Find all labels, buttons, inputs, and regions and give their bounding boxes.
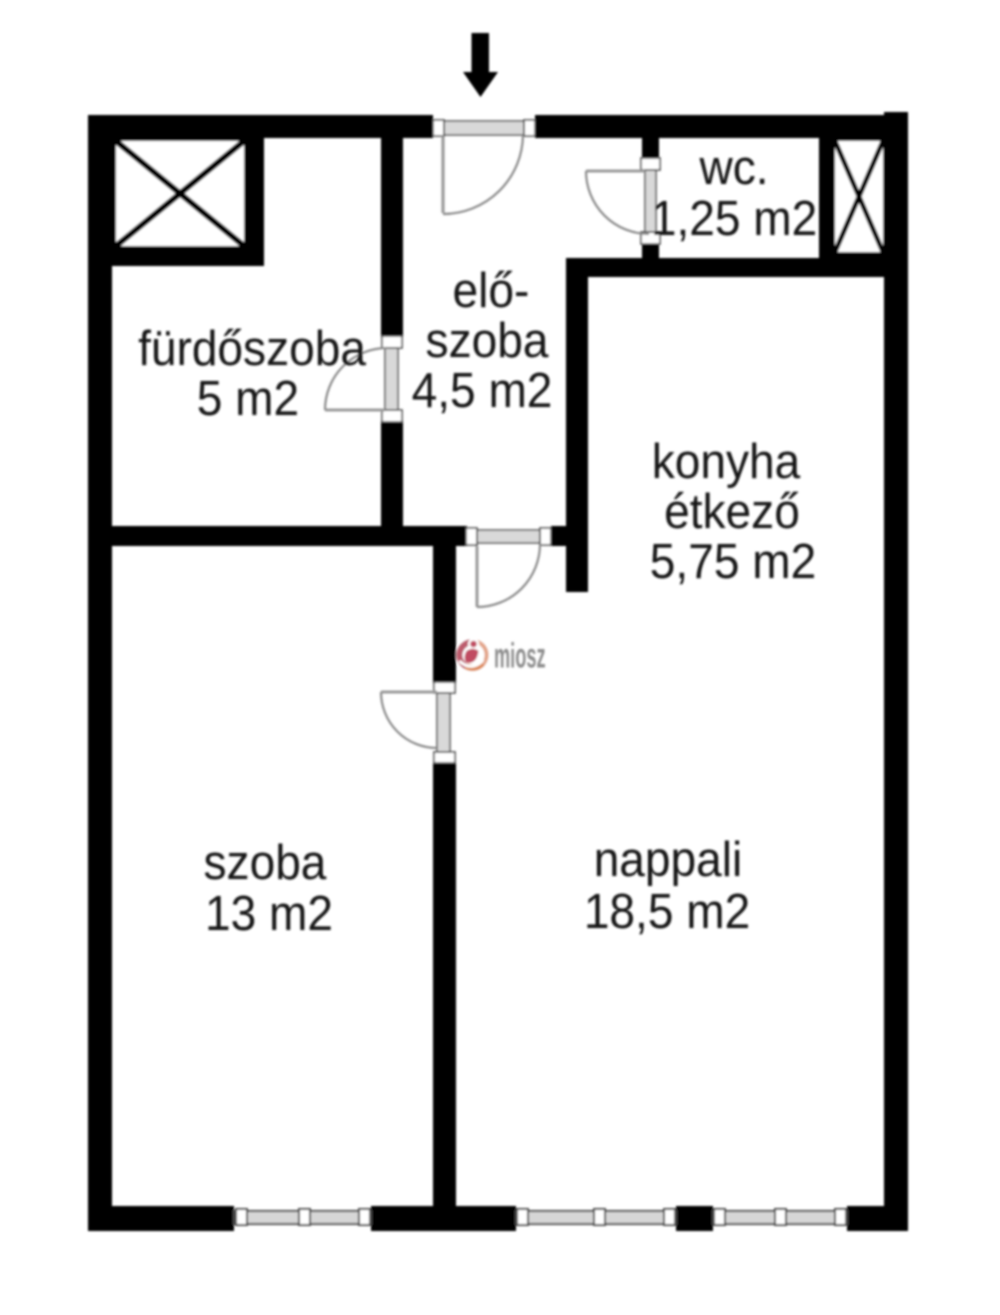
svg-text:1,25 m2: 1,25 m2	[651, 192, 817, 247]
svg-text:5 m2: 5 m2	[197, 372, 299, 427]
svg-text:5,75 m2: 5,75 m2	[650, 535, 816, 590]
svg-text:étkező: étkező	[664, 485, 800, 540]
svg-text:elő-: elő-	[453, 264, 530, 319]
svg-text:konyha: konyha	[652, 435, 801, 490]
svg-text:13 m2: 13 m2	[205, 887, 333, 942]
svg-text:miosz: miosz	[494, 636, 546, 675]
svg-text:szoba: szoba	[426, 314, 549, 369]
svg-text:wc.: wc.	[699, 141, 769, 196]
svg-text:18,5 m2: 18,5 m2	[584, 885, 750, 940]
svg-text:4,5 m2: 4,5 m2	[412, 364, 553, 419]
svg-text:fürdőszoba: fürdőszoba	[138, 322, 366, 377]
svg-text:szoba: szoba	[204, 836, 327, 891]
svg-text:nappali: nappali	[594, 833, 743, 888]
